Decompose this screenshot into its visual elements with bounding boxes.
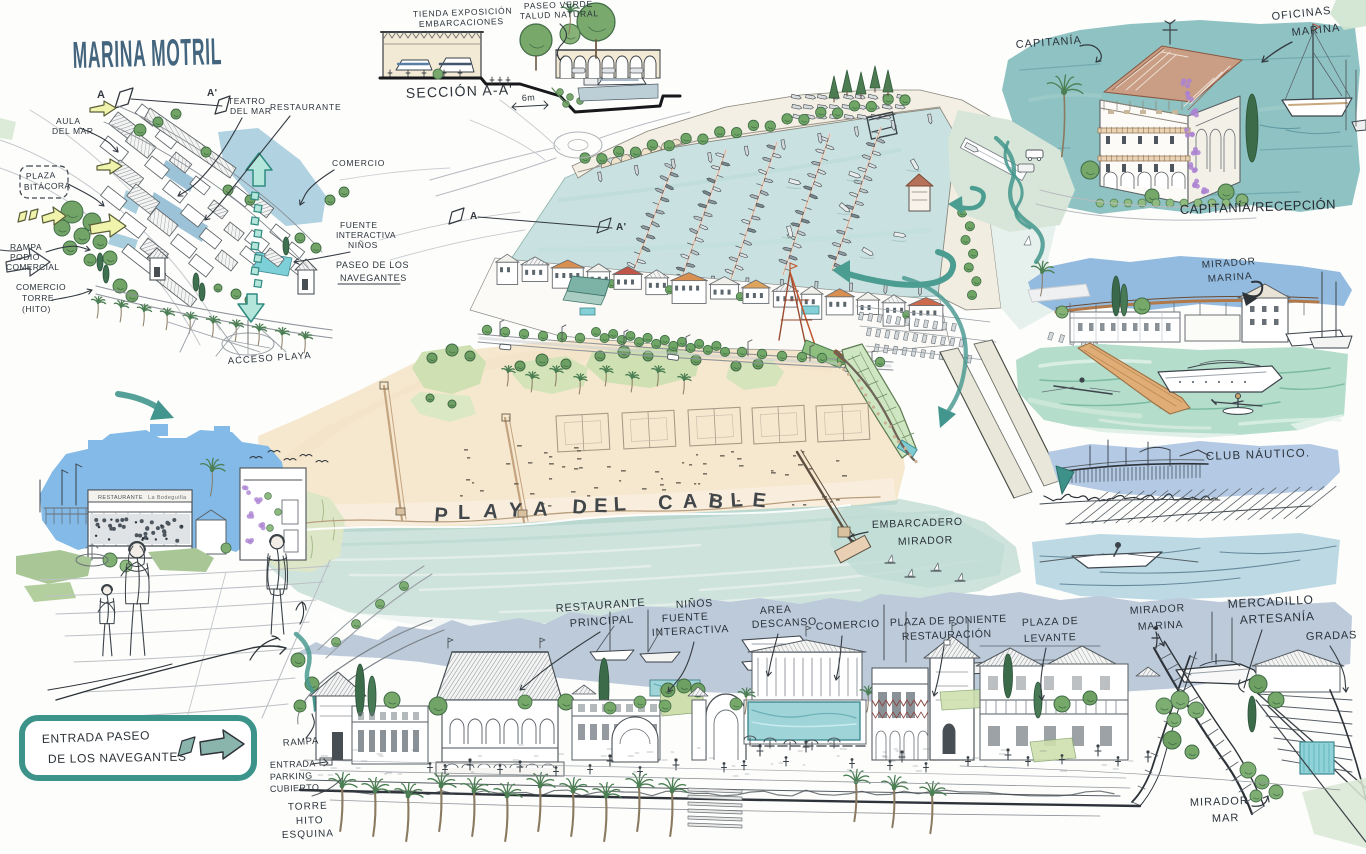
svg-text:B: B: [707, 490, 724, 514]
svg-text:HITO: HITO: [296, 815, 324, 827]
svg-text:D: D: [572, 496, 588, 519]
svg-text:LEVANTE: LEVANTE: [1024, 631, 1077, 645]
svg-text:E: E: [751, 489, 767, 512]
svg-text:A': A': [207, 88, 217, 99]
svg-text:RESTAURANTE: RESTAURANTE: [98, 495, 143, 501]
svg-text:MIRADOR: MIRADOR: [898, 534, 954, 548]
svg-text:DE LOS NAVEGANTES: DE LOS NAVEGANTES: [48, 750, 187, 766]
svg-text:E: E: [594, 495, 608, 517]
svg-text:MARINA MOTRIL: MARINA MOTRIL: [72, 31, 222, 77]
svg-text:NIÑOS: NIÑOS: [675, 596, 713, 611]
svg-text:RESTAURANTE: RESTAURANTE: [270, 102, 341, 112]
svg-text:FUENTE: FUENTE: [340, 220, 378, 230]
svg-text:AULA: AULA: [56, 116, 81, 126]
svg-text:BITÁCORA: BITÁCORA: [24, 180, 71, 192]
svg-text:CUBIERTO: CUBIERTO: [270, 782, 320, 794]
svg-text:PLAZA: PLAZA: [26, 170, 56, 181]
svg-text:A: A: [533, 498, 549, 521]
svg-text:MARINA: MARINA: [1138, 619, 1184, 633]
svg-text:L: L: [613, 493, 627, 516]
svg-text:MAR: MAR: [1212, 812, 1240, 825]
svg-text:FUENTE: FUENTE: [662, 611, 709, 625]
svg-text:P: P: [434, 504, 449, 527]
svg-text:PARKING: PARKING: [270, 771, 313, 782]
svg-text:TORRE: TORRE: [22, 293, 54, 303]
svg-text:COMERCIO: COMERCIO: [332, 158, 385, 168]
svg-text:AREA: AREA: [760, 603, 792, 617]
svg-text:A: A: [482, 500, 499, 523]
svg-text:C: C: [658, 492, 673, 514]
svg-text:ESQUINA: ESQUINA: [282, 828, 334, 841]
svg-text:A: A: [97, 89, 105, 101]
svg-text:L: L: [730, 489, 744, 512]
svg-text:NIÑOS: NIÑOS: [348, 240, 378, 250]
svg-text:6m: 6m: [522, 92, 536, 103]
svg-text:ENTRADA: ENTRADA: [270, 758, 316, 770]
svg-text:MIRADOR: MIRADOR: [1190, 795, 1249, 809]
svg-text:INTERACTIVA: INTERACTIVA: [336, 230, 396, 240]
svg-text:A': A': [616, 222, 626, 233]
svg-text:DEL MAR: DEL MAR: [230, 106, 272, 116]
svg-text:NAVEGANTES: NAVEGANTES: [340, 273, 407, 283]
svg-text:GRADAS: GRADAS: [1306, 629, 1358, 643]
svg-text:Y: Y: [508, 499, 524, 522]
svg-text:L: L: [458, 502, 471, 524]
svg-text:A: A: [682, 490, 698, 513]
svg-text:COMERCIO: COMERCIO: [16, 282, 66, 292]
svg-text:(HITO): (HITO): [22, 304, 51, 314]
svg-text:TEATRO: TEATRO: [228, 96, 265, 106]
svg-text:TORRE: TORRE: [288, 801, 328, 813]
svg-text:PASEO DE LOS: PASEO DE LOS: [336, 260, 409, 270]
svg-text:La Bodeguilla: La Bodeguilla: [148, 495, 187, 501]
svg-text:PLAZA DE: PLAZA DE: [1022, 615, 1079, 629]
svg-text:A: A: [470, 211, 478, 222]
